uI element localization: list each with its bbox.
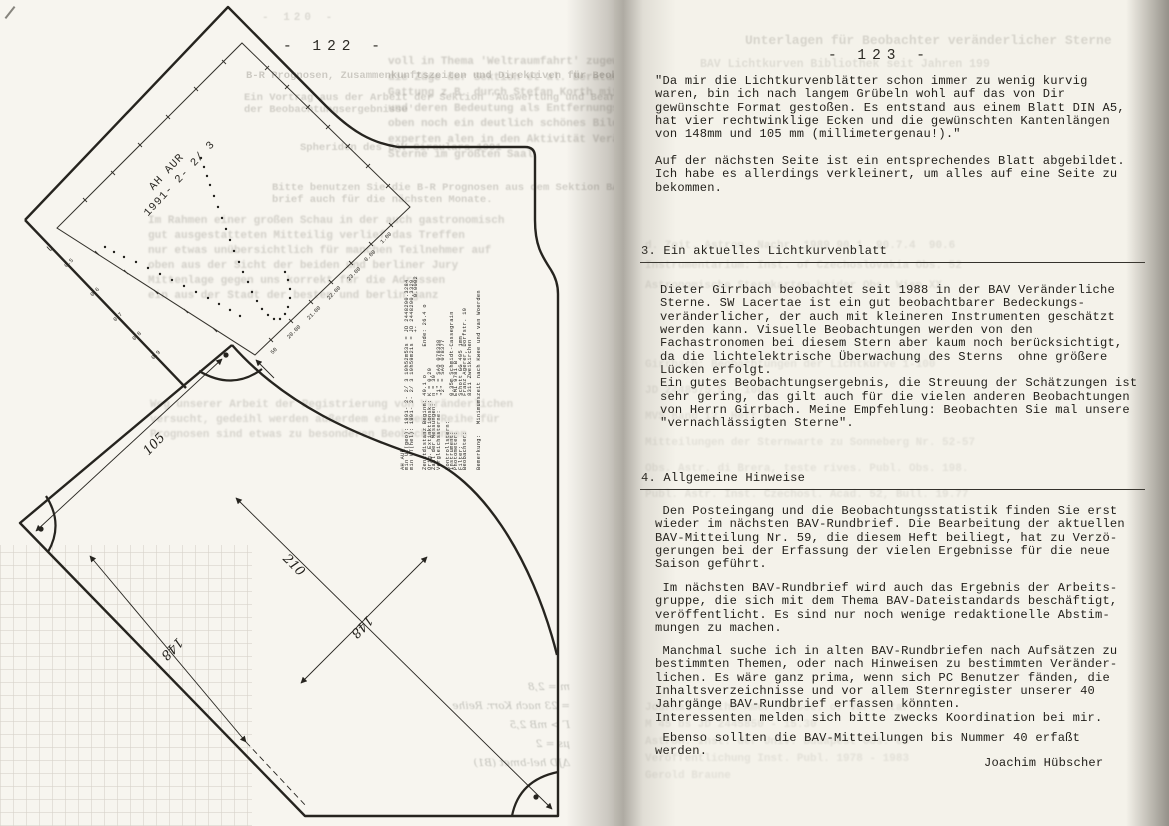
signature: Joachim Hübscher xyxy=(984,757,1103,770)
section-3-underline xyxy=(640,262,1145,263)
svg-text:20.00: 20.00 xyxy=(286,323,303,340)
observation-data-block: AH AUR min UT(geo): 1991- 2- 2/ 3 19h52m… xyxy=(401,276,481,470)
dim-148-left: 148 xyxy=(157,634,185,662)
svg-text:50: 50 xyxy=(269,346,279,356)
section-4-underline xyxy=(640,489,1145,490)
dimension-labels: 105 210 148 148 xyxy=(140,430,375,662)
svg-text:22.00: 22.00 xyxy=(326,284,343,301)
section-4-paragraph-4: Ebenso sollten die BAV-Mitteilungen bis … xyxy=(655,732,1080,759)
time-axis-labels: 50 20.00 21.00 22.00 23.00 0.00 1.00 xyxy=(269,230,394,356)
page-number-left: - 122 - xyxy=(283,39,386,55)
svg-text:21.00: 21.00 xyxy=(306,304,323,321)
curvy-edge xyxy=(232,345,557,655)
svg-text:23.00: 23.00 xyxy=(346,265,363,282)
dim-148-right: 148 xyxy=(347,612,375,640)
page-number-right: - 123 - xyxy=(828,48,931,64)
bleedthrough-text: Unterlagen für Beobachter veränderlicher… xyxy=(745,33,1112,48)
svg-text:1.00: 1.00 xyxy=(379,230,394,245)
section-4-heading: 4. Allgemeine Hinweise xyxy=(641,472,805,485)
section-3-body: Dieter Girrbach beobachtet seit 1988 in … xyxy=(660,284,1137,431)
page-122: - 120 - B-R Prognosen, Zusammenkunftszei… xyxy=(0,0,614,826)
section-4-paragraph-3: Manchmal suche ich in alten BAV-Rundbrie… xyxy=(655,645,1117,725)
axis-tick-marks xyxy=(83,60,393,342)
section-4-paragraph-2: Im nächsten BAV-Rundbrief wird auch das … xyxy=(655,582,1117,635)
section-3-heading: 3. Ein aktuelles Lichtkurvenblatt xyxy=(641,245,887,258)
dim-105: 105 xyxy=(140,430,168,458)
dim-210: 210 xyxy=(279,551,308,580)
section-4-paragraph-1: Den Posteingang und die Beobachtungsstat… xyxy=(655,505,1125,572)
page-123: Unterlagen für Beobachter veränderlicher… xyxy=(614,0,1169,826)
light-curve-points xyxy=(104,157,291,320)
lightcurve-sheet-drawing: 50 20.00 21.00 22.00 23.00 0.00 1.00 0.5… xyxy=(0,0,614,826)
scanned-book-spread: - 120 - B-R Prognosen, Zusammenkunftszei… xyxy=(0,0,1169,826)
svg-text:0.5: 0.5 xyxy=(63,257,75,269)
quote-paragraph-2: Auf der nächsten Seite ist ein entsprech… xyxy=(655,155,1125,195)
quote-paragraph-1: "Da mir die Lichtkurvenblätter schon imm… xyxy=(655,75,1125,142)
